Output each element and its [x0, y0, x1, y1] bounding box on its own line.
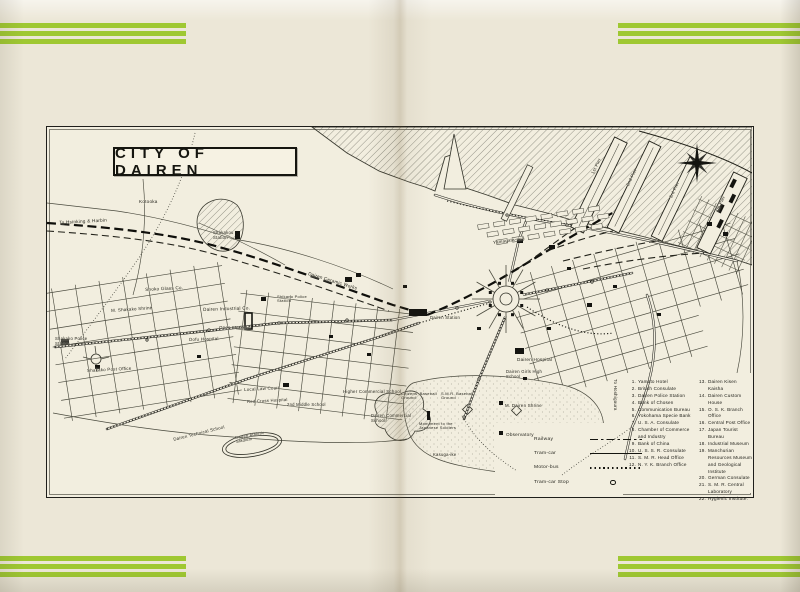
location-list-item: 4.Bank of Chosen	[625, 400, 691, 407]
city-map: CITY OF DAIREN To Hsinking & HarbinKotoo…	[46, 126, 754, 498]
location-list-item: 3.Dairen Police Station	[625, 393, 691, 400]
deco-stripe	[618, 31, 800, 36]
deco-stripe	[618, 23, 800, 28]
location-list-item: 15.O. S. K. Branch Office	[695, 407, 753, 421]
location-column-1: 1.Yamato Hotel2.British Consulate3.Daire…	[625, 379, 691, 503]
location-list-item: 20.German Consulate	[695, 475, 753, 482]
location-list-item: 12.N. Y. K. Branch Office	[625, 462, 691, 469]
location-list-item: 16.Central Post Office	[695, 420, 753, 427]
location-list-item: 1.Yamato Hotel	[625, 379, 691, 386]
location-list-item: 2.British Consulate	[625, 386, 691, 393]
deco-stripe	[618, 572, 800, 577]
location-list-item: 6.Yokohama Specie Bank	[625, 413, 691, 420]
location-list-item: 5.Communication Bureau	[625, 407, 691, 414]
location-column-2: 13.Dairen Kisen Kaisha14.Dairen Custom H…	[695, 379, 753, 503]
location-list-item: 17.Japan Tourist Bureau	[695, 427, 753, 441]
deco-stripe	[0, 31, 186, 36]
location-list-item: 21.S. M. R. Central Laboratory	[695, 482, 753, 496]
deco-stripe	[618, 564, 800, 569]
deco-stripe	[0, 572, 186, 577]
location-list-item: 11.S. M. R. Head Office	[625, 455, 691, 462]
location-list-item: 13.Dairen Kisen Kaisha	[695, 379, 753, 393]
legend-label: Railway	[534, 437, 590, 442]
legend-label: Tram-car	[534, 451, 590, 456]
location-index: 1.Yamato Hotel2.British Consulate3.Daire…	[625, 379, 753, 503]
streets-shakako-grid	[47, 262, 242, 423]
large-square-plaza	[472, 265, 540, 333]
athletic-stadium	[220, 428, 283, 461]
deco-stripe	[618, 39, 800, 44]
location-list-item: 7.U. S. A. Consulate	[625, 420, 691, 427]
location-list-item: 18.Industrial Museum	[695, 441, 753, 448]
location-list-item: 9.Bank of China	[625, 441, 691, 448]
deco-stripe	[0, 23, 186, 28]
map-title: CITY OF DAIREN	[115, 145, 295, 179]
deco-stripe	[618, 556, 800, 561]
location-list-item: 19.Manchurian Resources Museum and Geolo…	[695, 448, 753, 476]
scanned-book-page: CITY OF DAIREN To Hsinking & HarbinKotoo…	[0, 0, 800, 592]
deco-stripe	[0, 556, 186, 561]
legend-label: Tram-car Stop	[534, 480, 590, 485]
deco-stripe	[0, 564, 186, 569]
legend-label: Motor-bus	[534, 465, 590, 470]
location-list-item: 8.Chamber of Commerce and Industry	[625, 427, 691, 441]
deco-stripe	[0, 39, 186, 44]
map-title-box: CITY OF DAIREN	[113, 147, 297, 176]
location-list-item: 22.Hygienic Institute.	[695, 496, 753, 503]
location-list-item: 10.U. S. S. R. Consulate	[625, 448, 691, 455]
location-list-item: 14.Dairen Custom House	[695, 393, 753, 407]
